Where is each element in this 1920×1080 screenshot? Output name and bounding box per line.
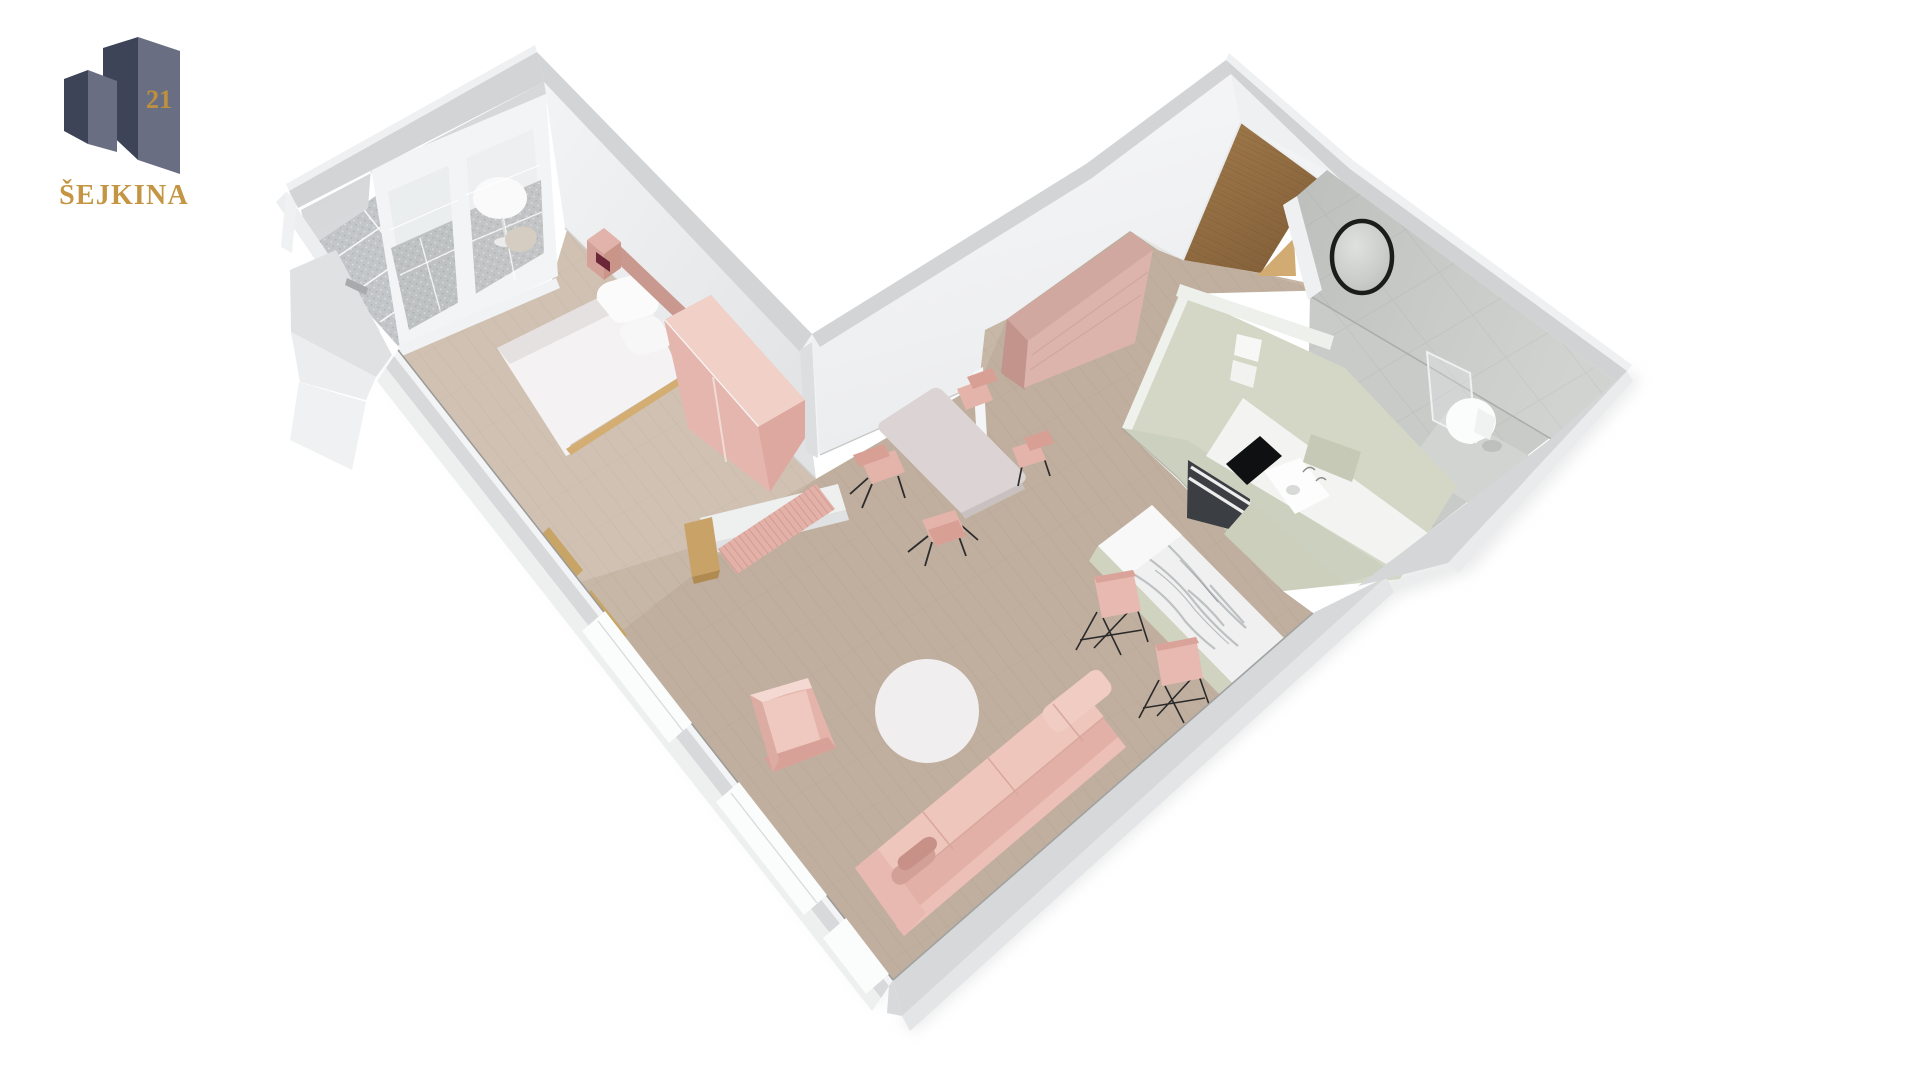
svg-text:ŠEJKINA: ŠEJKINA xyxy=(59,180,189,211)
svg-text:21: 21 xyxy=(146,85,172,114)
